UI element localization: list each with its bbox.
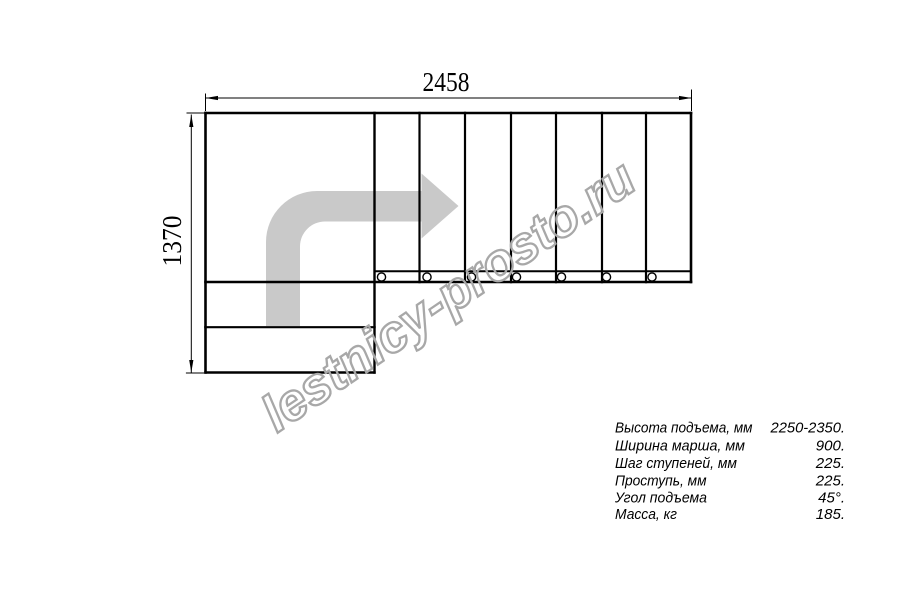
svg-text:Масса, кг: Масса, кг [615,506,678,523]
svg-text:225.: 225. [815,455,845,472]
svg-text:2458: 2458 [423,67,470,97]
svg-text:225.: 225. [815,472,845,489]
svg-text:900.: 900. [816,437,845,454]
svg-text:Угол подъема: Угол подъема [614,490,707,507]
svg-text:1370: 1370 [157,216,187,267]
svg-text:Ширина марша, мм: Ширина марша, мм [615,437,745,454]
svg-text:Шаг ступеней, мм: Шаг ступеней, мм [615,455,737,472]
svg-text:185.: 185. [816,506,845,523]
svg-text:Проступь, мм: Проступь, мм [615,472,707,489]
svg-text:45°.: 45°. [818,490,845,507]
svg-text:Высота подъема, мм: Высота подъема, мм [615,419,753,436]
svg-text:2250-2350.: 2250-2350. [770,419,845,436]
